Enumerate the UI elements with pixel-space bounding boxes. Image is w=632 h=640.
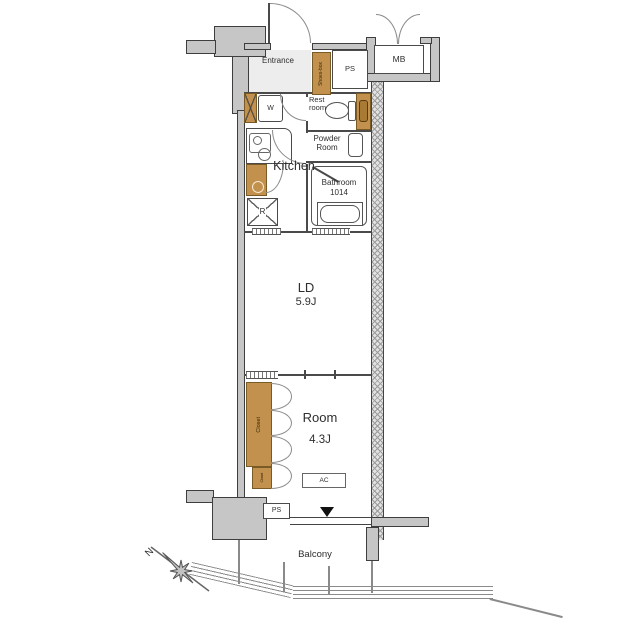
wall-segment	[366, 73, 440, 82]
mb-door-arc	[398, 14, 420, 44]
folding-door-arc	[271, 463, 292, 490]
ac-box: AC	[302, 473, 346, 488]
interior-wall-line	[306, 93, 308, 97]
vanity-sink-icon	[348, 133, 363, 157]
shoes-box-label: Shoes-box	[319, 62, 325, 86]
washer-icon: W	[258, 95, 283, 122]
refrigerator-label: R	[259, 208, 267, 217]
closet-sub-label: Closet	[260, 473, 264, 483]
ac-label: AC	[319, 477, 328, 484]
interior-wall-line	[306, 164, 308, 232]
balcony-railing	[293, 586, 493, 600]
closet-sub: Closet	[252, 467, 272, 489]
wall-segment-top	[244, 43, 271, 50]
mb-door-arc	[376, 14, 398, 44]
entrance-door-arc	[270, 3, 311, 43]
folding-door-arc	[271, 383, 292, 410]
shoes-box: Shoes-box	[312, 52, 331, 95]
restroom-door-arc	[280, 94, 306, 121]
kitchen-label: Kitchen	[266, 160, 322, 174]
balcony-window	[290, 517, 371, 525]
washer-door	[244, 93, 257, 123]
closet-main-label: Closet	[256, 417, 262, 433]
wall-segment-left	[237, 110, 245, 500]
compass-icon	[147, 541, 213, 599]
room-size-label: 4.3J	[292, 434, 348, 447]
cabinet-circle-icon	[252, 181, 264, 193]
pipe-space-top: PS	[332, 50, 368, 89]
door-leaf-icon	[359, 100, 368, 122]
sliding-door-tick	[304, 370, 306, 379]
closet-main: Closet	[246, 382, 272, 467]
balcony-label: Balcony	[293, 550, 337, 560]
washer-label: W	[267, 105, 274, 113]
room-label: Room	[292, 411, 348, 425]
bathtub-inner-icon	[320, 205, 360, 223]
bathroom-size-label: 1014	[313, 189, 365, 198]
refrigerator-box: R	[247, 198, 278, 226]
window-hatch	[312, 228, 350, 235]
toilet-tank-icon	[348, 101, 356, 121]
ld-label: LD	[278, 281, 334, 295]
kitchen-cabinet	[246, 164, 267, 196]
interior-wall-line	[306, 130, 372, 132]
window-hatch	[246, 371, 278, 379]
wall-segment	[366, 527, 379, 561]
restroom-door-panel	[356, 93, 371, 130]
sliding-door-tick	[334, 370, 336, 379]
folding-door-arc	[271, 436, 292, 463]
pipe-space-top-label: PS	[345, 65, 355, 73]
hatched-wall-right	[371, 82, 384, 540]
meter-box: MB	[374, 45, 424, 74]
wall-segment	[186, 40, 216, 54]
restroom-label: Rest room	[309, 96, 337, 113]
burner-icon	[253, 136, 262, 145]
meter-box-label: MB	[393, 55, 406, 64]
wall-segment	[186, 490, 214, 503]
wall-segment	[420, 37, 432, 44]
wall-segment	[212, 497, 267, 540]
pipe-space-bottom-label: PS	[272, 507, 281, 515]
floor-plan: Shoes-box PS MB W R Cl	[0, 0, 632, 640]
wall-segment	[214, 26, 266, 57]
ld-size-label: 5.9J	[278, 296, 334, 308]
pipe-space-bottom: PS	[263, 503, 290, 519]
interior-wall-line	[244, 92, 372, 94]
folding-door-arc	[271, 410, 292, 437]
ground-line	[490, 598, 563, 618]
entrance-label: Entrance	[246, 57, 310, 66]
window-hatch	[252, 228, 281, 235]
powder-room-label: Powder Room	[308, 135, 346, 153]
entry-direction-marker-icon	[320, 507, 334, 517]
bathroom-label: Bathroom	[313, 179, 365, 188]
wall-segment	[371, 517, 429, 527]
